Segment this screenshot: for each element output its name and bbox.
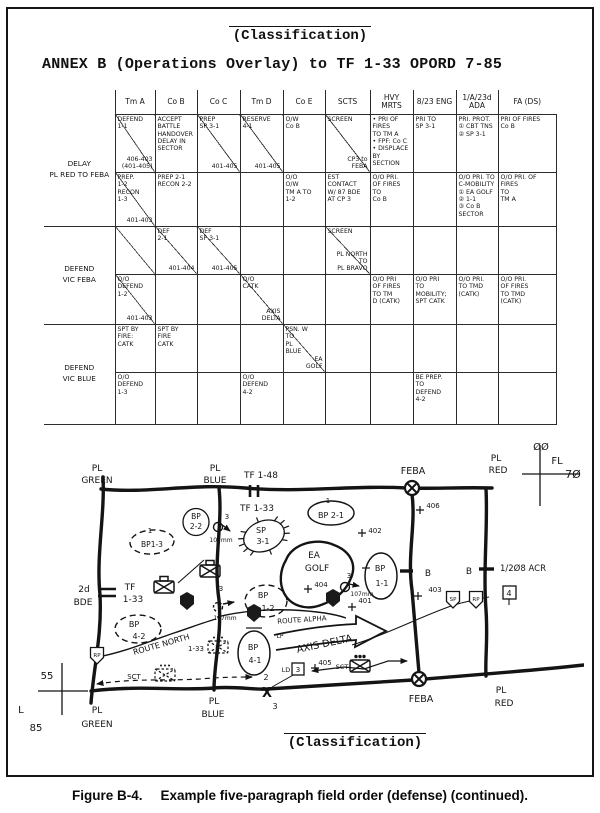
matrix-cell-task-text: PREP SP 3-1 bbox=[200, 116, 239, 131]
matrix-cell: O/O PRI. OF FIRES TO Co B bbox=[370, 172, 413, 226]
map-label: PL bbox=[491, 454, 501, 464]
matrix-cell: O/O O/W TM A TO 1-2 bbox=[283, 172, 325, 226]
scout-apc-icon bbox=[350, 656, 370, 673]
matrix-cell-task-text: O/O PRI. TO TMD (CATK) bbox=[459, 276, 497, 298]
map-label: PL bbox=[210, 464, 220, 474]
map-label: B bbox=[425, 569, 431, 579]
matrix-cell bbox=[197, 274, 240, 324]
matrix-cell: SCREENPL NORTH TO PL BRAVO bbox=[325, 226, 370, 274]
map-label: FEBA bbox=[409, 694, 434, 705]
operations-overlay-map: PLGREENPLBLUETF 1-48TF 1-33FEBAPLREDØØFL… bbox=[18, 436, 584, 736]
map-label: LP bbox=[277, 633, 284, 640]
map-label: PL bbox=[209, 697, 219, 707]
matrix-cell-task-text: PRI TO SP 3-1 bbox=[416, 116, 455, 131]
matrix-cell bbox=[413, 226, 456, 274]
matrix-cell: SPT BY FIRE: CATK bbox=[115, 324, 155, 372]
map-label: RED bbox=[489, 466, 508, 476]
matrix-cell-task-text: O/O O/W TM A TO 1-2 bbox=[286, 174, 324, 203]
figure-caption-text: Example five-paragraph field order (defe… bbox=[160, 788, 528, 803]
matrix-cell-task-text: O/O PRI. OF FIRES TO Co B bbox=[373, 174, 412, 203]
figure-caption: Figure B-4.Example five-paragraph field … bbox=[0, 788, 600, 803]
matrix-cell bbox=[413, 324, 456, 372]
matrix-cell bbox=[456, 372, 498, 424]
matrix-cell-task-text: O/O DEFEND 1-3 bbox=[118, 374, 154, 396]
map-label: 107mm bbox=[213, 615, 236, 622]
matrix-cell: DEFEND 1-1406-403 (401-405) bbox=[115, 114, 155, 172]
classification-top-text: (Classification) bbox=[229, 26, 371, 44]
matrix-cell-grid-text: 401-405 bbox=[212, 265, 238, 272]
scanned-field-manual-page: { "page": { "classification_top": "(Clas… bbox=[0, 0, 600, 813]
matrix-cell: EST CONTACT W/ 87 BDE AT CP 3 bbox=[325, 172, 370, 226]
coordination-point-icon bbox=[405, 481, 419, 495]
map-label: GOLF bbox=[305, 564, 329, 574]
map-label: AXIS DELTA bbox=[296, 633, 354, 656]
classification-top: (Classification) bbox=[0, 26, 600, 44]
map-label: 3 bbox=[219, 585, 223, 593]
map-label: B bbox=[466, 567, 472, 577]
checkpoint-404-icon bbox=[304, 585, 312, 593]
unit-column-header: SCTS bbox=[325, 90, 370, 114]
map-label: BDE bbox=[74, 598, 93, 608]
matrix-cell-task-text: O/O PRI. OF FIRES TO TMD (CATK) bbox=[501, 276, 555, 305]
matrix-cell: SPT BY FIRE CATK bbox=[155, 324, 197, 372]
map-label: 55 bbox=[41, 671, 54, 682]
map-label: 1-33 bbox=[188, 645, 204, 653]
map-label: PL bbox=[92, 464, 102, 474]
map-label: 1-1 bbox=[375, 579, 388, 588]
unit-column-header: Co C bbox=[197, 90, 240, 114]
mission-row-label: DEFEND VIC BLUE bbox=[44, 324, 115, 424]
matrix-cell-task-text: SCREEN bbox=[328, 116, 369, 123]
matrix-cell bbox=[456, 226, 498, 274]
map-label: BP 2-1 bbox=[318, 511, 344, 520]
mortar-icon bbox=[214, 602, 235, 612]
matrix-cell-task-text: EST CONTACT W/ 87 BDE AT CP 3 bbox=[328, 174, 369, 203]
map-label: BLUE bbox=[201, 710, 224, 720]
matrix-cell bbox=[115, 226, 155, 274]
map-label: BLUE bbox=[203, 476, 226, 486]
matrix-cell: RESERVE 4-1401-405 bbox=[240, 114, 283, 172]
matrix-cell-grid-text: PL NORTH TO PL BRAVO bbox=[337, 251, 368, 273]
map-label: 3 bbox=[347, 572, 351, 580]
matrix-cell bbox=[498, 324, 556, 372]
matrix-cell-task-text: O/O PRI OF FIRES TO TM D (CATK) bbox=[373, 276, 412, 305]
matrix-cell bbox=[370, 372, 413, 424]
matrix-cell bbox=[283, 372, 325, 424]
map-label: BP bbox=[375, 564, 385, 573]
map-label: 406 bbox=[426, 502, 440, 510]
matrix-cell-task-text: DEFEND 1-1 bbox=[118, 116, 154, 131]
matrix-cell-task-text: O/O DEFEND 4-2 bbox=[243, 374, 282, 396]
coordination-points bbox=[405, 481, 426, 686]
matrix-cell-grid-text: 406-403 (401-405) bbox=[122, 156, 153, 171]
mortar-icon bbox=[214, 523, 231, 532]
matrix-cell: O/O PRI TO MOBILITY; SPT CATK bbox=[413, 274, 456, 324]
matrix-cell bbox=[370, 226, 413, 274]
map-label: TF bbox=[124, 583, 136, 593]
matrix-cell bbox=[456, 324, 498, 372]
feba-line bbox=[410, 494, 419, 673]
map-label: 3 bbox=[225, 513, 229, 521]
matrix-cell bbox=[197, 372, 240, 424]
unit-column-header: Tm D bbox=[240, 90, 283, 114]
mission-row-label: DEFEND VIC FEBA bbox=[44, 226, 115, 324]
map-label: 1 bbox=[326, 497, 330, 505]
map-label: 7Ø bbox=[565, 468, 581, 481]
map-label: 85 bbox=[30, 723, 43, 734]
matrix-cell-task-text: SPT BY FIRE CATK bbox=[158, 326, 196, 348]
matrix-cell: O/O PRI. OF FIRES TO TMD (CATK) bbox=[498, 274, 556, 324]
map-label: 2d bbox=[78, 585, 89, 595]
matrix-cell: SCREENCP3 to FEBA bbox=[325, 114, 370, 172]
matrix-cell bbox=[283, 226, 325, 274]
matrix-cell: O/O PRI. TO C-MOBILITY ① EA GOLF ② 1-1 ③… bbox=[456, 172, 498, 226]
matrix-cell: BE PREP. TO DEFEND 4-2 bbox=[413, 372, 456, 424]
matrix-cell: O/O PRI. OF FIRES TO TM A bbox=[498, 172, 556, 226]
matrix-cell: PRI OF FIRES Co B bbox=[498, 114, 556, 172]
map-label: TF 1-33 bbox=[239, 504, 274, 514]
matrix-cell: O/O PRI OF FIRES TO TM D (CATK) bbox=[370, 274, 413, 324]
matrix-cell: O/O DEFEND 1-2401-403 bbox=[115, 274, 155, 324]
matrix-cell-grid-text: CP3 to FEBA bbox=[347, 156, 367, 171]
matrix-cell-grid-text: 401-405 bbox=[255, 163, 281, 170]
map-label: BP1-3 bbox=[141, 540, 163, 549]
matrix-cell bbox=[498, 226, 556, 274]
map-label: RP bbox=[472, 597, 480, 603]
unit-column-header: 1/A/23d ADA bbox=[456, 90, 498, 114]
checkpoint-401-icon bbox=[348, 603, 356, 611]
matrix-cell-task-text: O/O CATK bbox=[243, 276, 282, 291]
matrix-cell: O/O CATKAXIS DELTA bbox=[240, 274, 283, 324]
map-label: RED bbox=[495, 699, 514, 709]
matrix-cell-task-text: DEF 2-1 bbox=[158, 228, 196, 243]
map-label: BP bbox=[129, 620, 139, 629]
checkpoint-406-icon bbox=[416, 506, 424, 514]
matrix-cell: PRI. PROT. ① CBT TNS ② SP 3-1 bbox=[456, 114, 498, 172]
map-label: 1-33 bbox=[123, 595, 143, 605]
map-label: ØØ bbox=[533, 441, 549, 453]
matrix-cell: O/W Co B bbox=[283, 114, 325, 172]
figure-caption-label: Figure B-4. bbox=[72, 788, 143, 803]
matrix-cell bbox=[197, 172, 240, 226]
map-label: SP bbox=[450, 597, 457, 603]
matrix-cell bbox=[498, 372, 556, 424]
map-label: 405 bbox=[318, 659, 331, 667]
map-label: 4 bbox=[506, 589, 511, 598]
checkpoint-403-icon bbox=[414, 592, 422, 600]
matrix-cell-task-text: SCREEN bbox=[328, 228, 369, 235]
unit-column-header: Tm A bbox=[115, 90, 155, 114]
matrix-cell: DEF 2-1401-404 bbox=[155, 226, 197, 274]
map-label: EA bbox=[308, 551, 321, 561]
map-label: X bbox=[262, 686, 272, 701]
map-label: 3 bbox=[272, 702, 277, 711]
map-label: GREEN bbox=[81, 476, 112, 486]
unit-column-header: Co B bbox=[155, 90, 197, 114]
map-label: 4-2 bbox=[132, 632, 145, 641]
map-label: FEBA bbox=[401, 466, 426, 477]
matrix-cell-task-text: PREP 2-1 RECON 2-2 bbox=[158, 174, 196, 189]
matrix-cell: • PRI OF FIRES TO TM A • FPF: Co C • DIS… bbox=[370, 114, 413, 172]
matrix-cell: DEF SP 3-1401-405 bbox=[197, 226, 240, 274]
map-label: BP bbox=[248, 643, 258, 652]
checkpoint-402-icon bbox=[358, 529, 366, 537]
matrix-cell bbox=[155, 274, 197, 324]
matrix-cell: PREP. 1-2 RECON 1-3401-403 bbox=[115, 172, 155, 226]
map-label: 403 bbox=[428, 586, 441, 594]
matrix-cell-task-text: O/O DEFEND 1-2 bbox=[118, 276, 154, 298]
matrix-cell-task-text: SPT BY FIRE: CATK bbox=[118, 326, 154, 348]
matrix-cell-grid-text: EA GOLF bbox=[306, 356, 323, 371]
map-label: 2-2 bbox=[190, 522, 202, 531]
matrix-cell: PREP SP 3-1401-405 bbox=[197, 114, 240, 172]
matrix-cell: O/O DEFEND 1-3 bbox=[115, 372, 155, 424]
matrix-cell bbox=[197, 324, 240, 372]
map-label: FL bbox=[551, 456, 563, 467]
map-label: RP bbox=[93, 653, 101, 659]
map-label: TF 1-48 bbox=[243, 471, 278, 481]
bp-4-1-ellipse bbox=[238, 631, 270, 675]
matrix-cell-task-text: DEF SP 3-1 bbox=[200, 228, 239, 243]
map-label: BP bbox=[191, 512, 201, 521]
map-label: 401 bbox=[358, 597, 371, 605]
map-label: FL bbox=[18, 705, 24, 716]
matrix-cell bbox=[370, 324, 413, 372]
classification-bottom-text: (Classification) bbox=[284, 733, 426, 751]
map-label: 3-1 bbox=[256, 537, 269, 546]
matrix-cell bbox=[240, 172, 283, 226]
matrix-cell: PREP 2-1 RECON 2-2 bbox=[155, 172, 197, 226]
map-label: SP bbox=[256, 526, 266, 535]
matrix-cell-task-text: O/O PRI TO MOBILITY; SPT CATK bbox=[416, 276, 455, 305]
map-label: BP bbox=[258, 591, 268, 600]
matrix-cell-task-text: ACCEPT BATTLE HANDOVER DELAY IN SECTOR bbox=[158, 116, 196, 153]
map-label: PL bbox=[496, 686, 506, 696]
matrix-cell-grid-text: AXIS DELTA bbox=[262, 308, 281, 323]
map-label: 3 bbox=[296, 666, 300, 674]
matrix-cell-grid-text: 401-405 bbox=[212, 163, 238, 170]
map-label: 1/2Ø8 ACR bbox=[500, 563, 546, 574]
matrix-cell-task-text: RESERVE 4-1 bbox=[243, 116, 282, 131]
matrix-cell-grid-text: 401-403 bbox=[127, 217, 153, 224]
coordination-point-icon bbox=[412, 672, 426, 686]
matrix-cell-task-text: O/W Co B bbox=[286, 116, 324, 131]
map-label: LD bbox=[282, 666, 291, 674]
contact-point-leader bbox=[272, 674, 295, 687]
apc-icon bbox=[154, 577, 174, 594]
matrix-cell: O/O PRI. TO TMD (CATK) bbox=[456, 274, 498, 324]
matrix-corner-cell bbox=[44, 90, 115, 114]
matrix-cell bbox=[325, 372, 370, 424]
matrix-cell: PRI TO SP 3-1 bbox=[413, 114, 456, 172]
matrix-cell: PSN. W TO PL BLUEEA GOLF bbox=[283, 324, 325, 372]
mission-row-label: DELAY PL RED TO FEBA bbox=[44, 114, 115, 226]
matrix-cell bbox=[413, 172, 456, 226]
map-label: 107mm bbox=[209, 537, 232, 544]
map-label: 402 bbox=[368, 527, 381, 535]
matrix-cell-task-text: O/O PRI. OF FIRES TO TM A bbox=[501, 174, 555, 203]
map-label: ROUTE ALPHA bbox=[277, 614, 327, 625]
matrix-cell-grid-text: 401-404 bbox=[169, 265, 195, 272]
matrix-cell bbox=[155, 372, 197, 424]
annex-title: ANNEX B (Operations Overlay) to TF 1-33 … bbox=[42, 56, 502, 73]
matrix-cell: ACCEPT BATTLE HANDOVER DELAY IN SECTOR bbox=[155, 114, 197, 172]
map-label: 404 bbox=[314, 581, 328, 589]
matrix-cell-task-text: • PRI OF FIRES TO TM A • FPF: Co C • DIS… bbox=[373, 116, 412, 167]
matrix-cell bbox=[240, 324, 283, 372]
map-label: 2 bbox=[263, 673, 268, 682]
map-label: SCT bbox=[127, 673, 141, 681]
op-flag-icon bbox=[180, 592, 194, 610]
matrix-cell-task-text: O/O PRI. TO C-MOBILITY ① EA GOLF ② 1-1 ③… bbox=[459, 174, 497, 218]
op-flag-icon bbox=[247, 604, 261, 622]
classification-bottom: (Classification) bbox=[110, 733, 600, 751]
unit-column-header: HVY MRTS bbox=[370, 90, 413, 114]
matrix-cell-task-text: PREP. 1-2 RECON 1-3 bbox=[118, 174, 154, 203]
map-label: GREEN bbox=[81, 720, 112, 730]
tf-boundary-tick-icon bbox=[250, 485, 258, 497]
forward-boundary-line bbox=[101, 487, 492, 491]
matrix-cell-task-text: PRI. PROT. ① CBT TNS ② SP 3-1 bbox=[459, 116, 497, 138]
map-label: 4-1 bbox=[248, 656, 261, 665]
map-label: PL bbox=[92, 706, 102, 716]
map-label: SCT bbox=[336, 663, 349, 671]
map-label: 1 bbox=[148, 527, 152, 535]
matrix-cell bbox=[325, 324, 370, 372]
matrix-cell-task-text: PSN. W TO PL BLUE bbox=[286, 326, 324, 355]
map-label: 1-2 bbox=[261, 604, 274, 613]
matrix-cell-task-text: PRI OF FIRES Co B bbox=[501, 116, 555, 131]
pl-red-line bbox=[485, 489, 487, 676]
matrix-cell bbox=[325, 274, 370, 324]
matrix-cell-grid-text: 401-403 bbox=[127, 315, 153, 322]
unit-column-header: FA (DS) bbox=[498, 90, 556, 114]
matrix-cell bbox=[283, 274, 325, 324]
scout-apc-dashed-icon bbox=[155, 665, 175, 682]
matrix-cell: O/O DEFEND 4-2 bbox=[240, 372, 283, 424]
execution-matrix-table: Tm ACo BCo CTm DCo ESCTSHVY MRTS8/23 ENG… bbox=[44, 90, 557, 425]
unit-column-header: 8/23 ENG bbox=[413, 90, 456, 114]
op-flag-icon bbox=[326, 589, 340, 607]
unit-column-header: Co E bbox=[283, 90, 325, 114]
matrix-cell bbox=[240, 226, 283, 274]
matrix-cell-task-text: BE PREP. TO DEFEND 4-2 bbox=[416, 374, 455, 403]
